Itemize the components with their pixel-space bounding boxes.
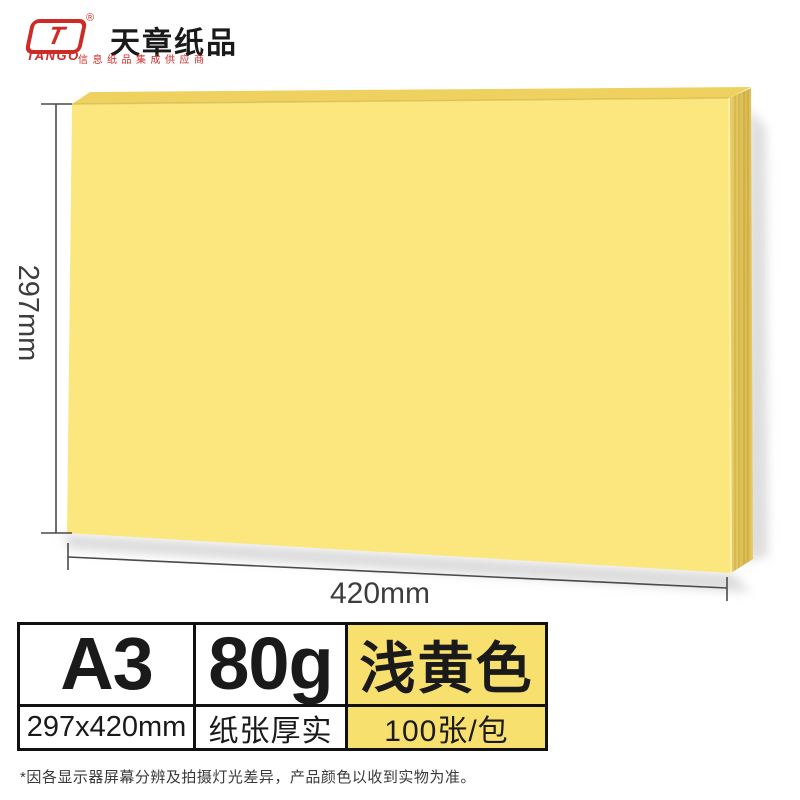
paper-front-face <box>67 98 731 573</box>
height-dimension-line <box>41 104 72 533</box>
product-image: T ® TANGO 天章纸品 信息纸品集成供应商 <box>0 0 800 800</box>
spec-size-detail: 297x420mm <box>20 707 196 748</box>
spec-weight-detail: 纸张厚实 <box>196 707 348 748</box>
spec-color-name: 浅黄色 <box>348 625 545 707</box>
width-dimension-label: 420mm <box>300 577 460 611</box>
spec-size: A3 <box>20 625 196 707</box>
height-dimension-label: 297mm <box>12 248 44 378</box>
disclaimer-text: *因各显示器屏幕分辨及拍摄灯光差异，产品颜色以收到实物为准。 <box>20 766 476 787</box>
paper-side-face <box>729 88 753 573</box>
spec-table: A3 80g 浅黄色 297x420mm 纸张厚实 100张/包 <box>17 622 548 751</box>
spec-pack-detail: 100张/包 <box>348 707 545 748</box>
spec-weight: 80g <box>196 625 348 707</box>
